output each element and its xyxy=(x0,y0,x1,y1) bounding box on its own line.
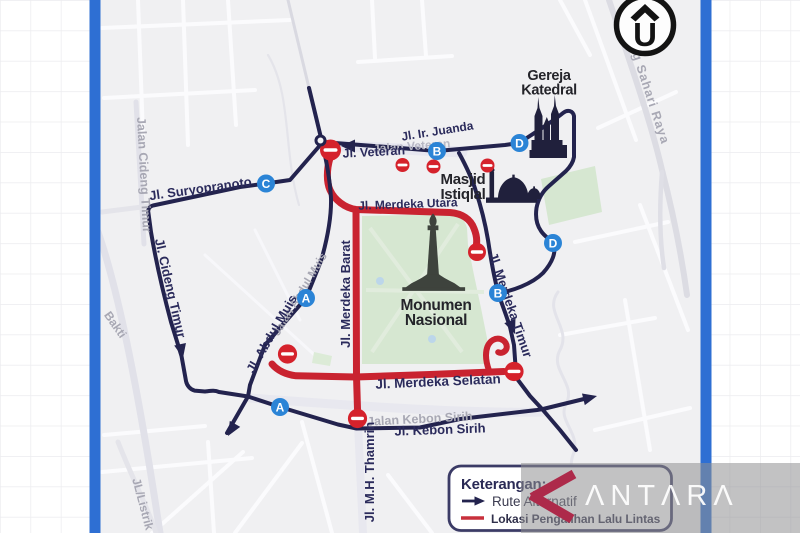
svg-text:Katedral: Katedral xyxy=(521,83,577,99)
svg-text:Jl. Kebon Sirih: Jl. Kebon Sirih xyxy=(394,420,486,438)
svg-text:Nasional: Nasional xyxy=(405,312,467,329)
svg-text:B: B xyxy=(433,144,442,158)
svg-text:U: U xyxy=(633,16,657,53)
svg-text:B: B xyxy=(494,286,503,300)
svg-text:Istiqlal: Istiqlal xyxy=(440,186,485,203)
svg-text:D: D xyxy=(549,236,558,250)
svg-text:Jl. M.H. Thamrin: Jl. M.H. Thamrin xyxy=(362,422,377,522)
svg-text:A: A xyxy=(276,400,285,414)
svg-text:Jl. Merdeka Barat: Jl. Merdeka Barat xyxy=(338,240,353,348)
svg-text:D: D xyxy=(515,136,524,150)
svg-text:ΛNTΛRΛ: ΛNTΛRΛ xyxy=(585,480,739,512)
svg-text:A: A xyxy=(302,291,311,305)
svg-text:C: C xyxy=(262,177,271,191)
